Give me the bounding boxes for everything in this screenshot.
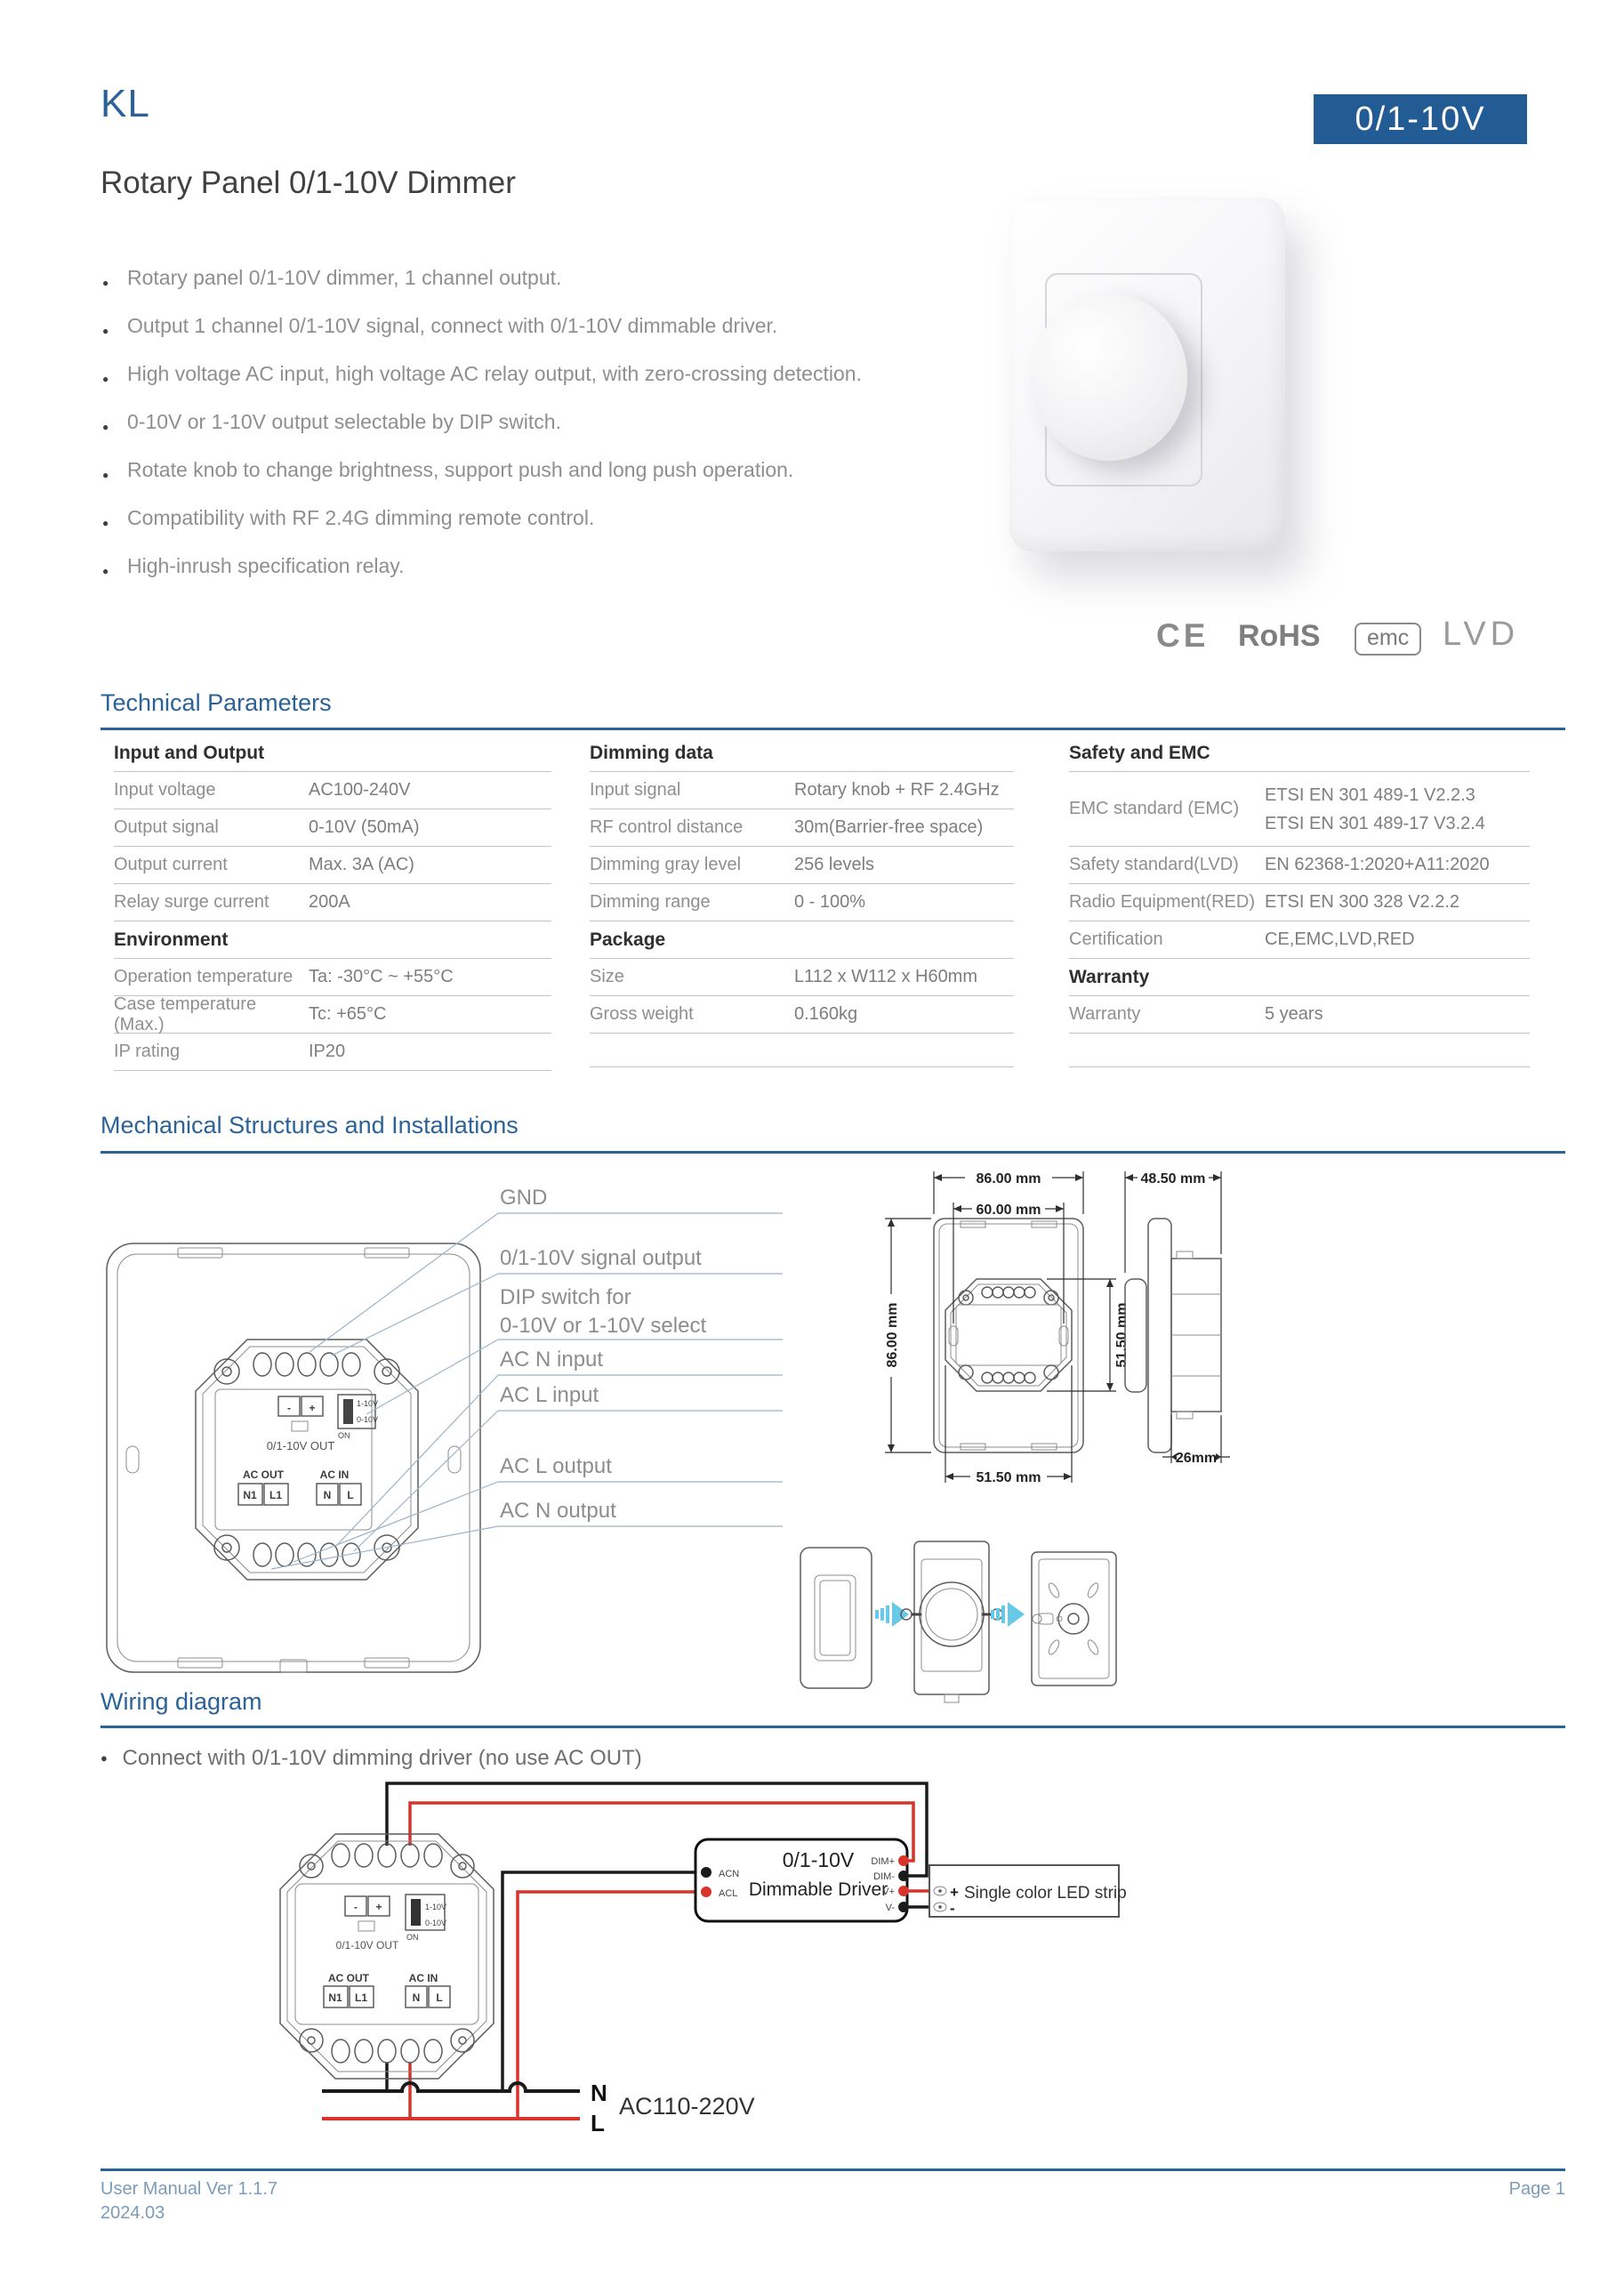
spec-group-header: Environment: [114, 921, 551, 959]
table-row: SizeL112 x W112 x H60mm: [590, 959, 1014, 996]
table-row: EMC standard (EMC) ETSI EN 301 489-1 V2.…: [1069, 772, 1530, 847]
terminal-n: N: [413, 1991, 421, 2004]
section-title-mechanical: Mechanical Structures and Installations: [100, 1112, 519, 1139]
mains-n-label: N: [591, 2080, 607, 2106]
table-row: Gross weight0.160kg: [590, 996, 1014, 1034]
rotary-knob: [1031, 294, 1187, 461]
table-row: Output currentMax. 3A (AC): [114, 847, 551, 884]
dip-0-10v-label: 0-10V: [357, 1415, 378, 1424]
table-row: RF control distance30m(Barrier-free spac…: [590, 809, 1014, 847]
dip-1-10v-label: 1-10V: [425, 1903, 446, 1911]
callout-signal-output: 0/1-10V signal output: [500, 1246, 702, 1270]
led-strip-label: Single color LED strip: [964, 1884, 1127, 1903]
table-row: Operation temperatureTa: -30°C ~ +55°C: [114, 959, 551, 996]
footer-version: User Manual Ver 1.1.7: [100, 2179, 277, 2200]
terminal-n1: N1: [328, 1991, 342, 2004]
feature-item: High voltage AC input, high voltage AC r…: [100, 363, 990, 385]
product-code: KL: [100, 82, 150, 126]
dimmer-back-module: - + 0/1-10V OUT 1-10V 0-10V ON AC OUT N1…: [280, 1834, 494, 2079]
plus-terminal-label: +: [375, 1901, 382, 1913]
section-divider: [100, 728, 1565, 730]
spec-group-header: Safety and EMC: [1069, 735, 1530, 772]
feature-item: Compatibility with RF 2.4G dimming remot…: [100, 507, 990, 529]
terminal-acl: ACL: [719, 1888, 737, 1899]
feature-list: Rotary panel 0/1-10V dimmer, 1 channel o…: [100, 267, 990, 603]
table-spacer: [590, 1034, 1014, 1067]
section-divider: [100, 1726, 1565, 1728]
ce-mark: CE: [1156, 617, 1209, 655]
dim-width-86: 86.00 mm: [977, 1171, 1041, 1187]
section-divider: [100, 1151, 1565, 1154]
signal-out-label: 0/1-10V OUT: [267, 1439, 335, 1452]
spec-group-header: Warranty: [1069, 959, 1530, 996]
terminal-dim-minus: DIM-: [873, 1871, 895, 1882]
dim-height-86: 86.00 mm: [885, 1303, 900, 1368]
terminal-acn: ACN: [719, 1869, 739, 1879]
table-row: Output signal0-10V (50mA): [114, 809, 551, 847]
lvd-mark: LVD: [1443, 616, 1519, 654]
table-row: Dimming range0 - 100%: [590, 884, 1014, 921]
table-row: Case temperature (Max.)Tc: +65°C: [114, 996, 551, 1034]
footer-divider: [100, 2168, 1565, 2171]
spec-group-header: Dimming data: [590, 735, 1014, 772]
installation-diagram: [783, 1534, 1138, 1708]
terminal-l1: L1: [355, 1991, 367, 2004]
led-strip-box: + - Single color LED strip: [929, 1865, 1127, 1917]
led-plus-label: +: [950, 1884, 959, 1901]
footer-page-number: Page 1: [1387, 2179, 1565, 2200]
callout-gnd: GND: [500, 1186, 547, 1210]
dim-depth-48-5: 48.50 mm: [1141, 1171, 1206, 1187]
spec-column-dimming: Dimming data Input signalRotary knob + R…: [590, 735, 1014, 1067]
page-title: Rotary Panel 0/1-10V Dimmer: [100, 165, 516, 201]
mains-l-label: L: [591, 2110, 605, 2136]
table-row: Dimming gray level256 levels: [590, 847, 1014, 884]
feature-item: High-inrush specification relay.: [100, 555, 990, 577]
product-photo: [1009, 197, 1285, 551]
dimmable-driver-box: 0/1-10V Dimmable Driver ACN ACL DIM+ DIM…: [695, 1839, 909, 1921]
spec-column-safety: Safety and EMC EMC standard (EMC) ETSI E…: [1069, 735, 1530, 1067]
feature-item: Rotate knob to change brightness, suppor…: [100, 459, 990, 481]
panel-back-diagram: - + 0/1-10V OUT 1-10V 0-10V ON AC OUT N1…: [71, 1165, 872, 1690]
feature-item: 0-10V or 1-10V output selectable by DIP …: [100, 411, 990, 433]
mains-voltage-label: AC110-220V: [619, 2093, 755, 2120]
terminal-l1: L1: [269, 1489, 282, 1501]
driver-subtitle: Dimmable Driver: [749, 1879, 888, 1900]
terminal-n1: N1: [243, 1489, 257, 1501]
callout-dip-line2: 0-10V or 1-10V select: [500, 1314, 706, 1338]
ac-out-label: AC OUT: [243, 1468, 285, 1481]
feature-item: Output 1 channel 0/1-10V signal, connect…: [100, 315, 990, 337]
terminal-dim-plus: DIM+: [871, 1856, 895, 1867]
callout-ac-n-input: AC N input: [500, 1348, 603, 1372]
table-row: Input signalRotary knob + RF 2.4GHz: [590, 772, 1014, 809]
dim-height-51-5: 51.50 mm: [1114, 1303, 1130, 1368]
callout-ac-n-output: AC N output: [500, 1499, 616, 1523]
rohs-mark: RoHS: [1238, 619, 1321, 654]
callout-dip-line1: DIP switch for: [500, 1285, 631, 1309]
dim-depth-26: 26mm: [1176, 1451, 1217, 1466]
terminal-v-plus: V+: [882, 1887, 895, 1897]
table-row: Radio Equipment(RED)ETSI EN 300 328 V2.2…: [1069, 884, 1530, 921]
plus-terminal-label: +: [309, 1402, 315, 1414]
dip-on-label: ON: [338, 1431, 350, 1440]
section-title-technical: Technical Parameters: [100, 689, 332, 717]
driver-title: 0/1-10V: [783, 1848, 855, 1871]
table-row: Input voltageAC100-240V: [114, 772, 551, 809]
minus-terminal-label: -: [354, 1901, 358, 1913]
table-row: Relay surge current200A: [114, 884, 551, 921]
terminal-l: L: [347, 1489, 353, 1501]
dimension-diagram: 86.00 mm 60.00 mm 86.00 mm 51.50 mm 51.5…: [849, 1161, 1267, 1517]
dip-1-10v-label: 1-10V: [357, 1399, 378, 1408]
manual-page: KL Rotary Panel 0/1-10V Dimmer 0/1-10V R…: [0, 0, 1624, 2277]
table-row: Warranty5 years: [1069, 996, 1530, 1034]
arrow-right-icon: [875, 1602, 909, 1627]
callout-ac-l-output: AC L output: [500, 1454, 612, 1478]
terminal-n: N: [324, 1489, 332, 1501]
minus-terminal-label: -: [287, 1402, 291, 1414]
dim-width-60: 60.00 mm: [977, 1203, 1041, 1218]
table-row: CertificationCE,EMC,LVD,RED: [1069, 921, 1530, 959]
dip-0-10v-label: 0-10V: [425, 1919, 446, 1927]
ac-out-label: AC OUT: [328, 1972, 370, 1984]
ac-in-label: AC IN: [409, 1972, 438, 1984]
dim-width-51-5: 51.50 mm: [977, 1470, 1041, 1485]
bullet-icon: ●: [100, 1751, 108, 1765]
table-spacer: [1069, 1034, 1530, 1067]
dip-on-label: ON: [406, 1933, 419, 1942]
wall-mount-box: [1032, 1552, 1116, 1686]
terminal-l: L: [436, 1991, 442, 2004]
feature-item: Rotary panel 0/1-10V dimmer, 1 channel o…: [100, 267, 990, 289]
table-row: Safety standard(LVD)EN 62368-1:2020+A11:…: [1069, 847, 1530, 884]
emc-mark: emc: [1355, 623, 1421, 656]
table-row: IP ratingIP20: [114, 1034, 551, 1071]
signal-out-label: 0/1-10V OUT: [336, 1939, 399, 1951]
signal-type-badge: 0/1-10V: [1314, 94, 1527, 144]
footer-date: 2024.03: [100, 2203, 165, 2224]
terminal-v-minus: V-: [886, 1903, 896, 1913]
wiring-diagram: - + 0/1-10V OUT 1-10V 0-10V ON AC OUT N1…: [231, 1766, 1174, 2139]
ac-in-label: AC IN: [320, 1468, 350, 1481]
led-minus-label: -: [950, 1900, 955, 1917]
spec-group-header: Input and Output: [114, 735, 551, 772]
spec-column-input-output: Input and Output Input voltageAC100-240V…: [114, 735, 551, 1071]
callout-ac-l-input: AC L input: [500, 1383, 599, 1407]
arrow-right-icon: [991, 1602, 1025, 1627]
section-title-wiring: Wiring diagram: [100, 1688, 262, 1716]
front-frame: [800, 1548, 872, 1688]
dimmer-unit: [901, 1541, 1002, 1702]
spec-group-header: Package: [590, 921, 1014, 959]
